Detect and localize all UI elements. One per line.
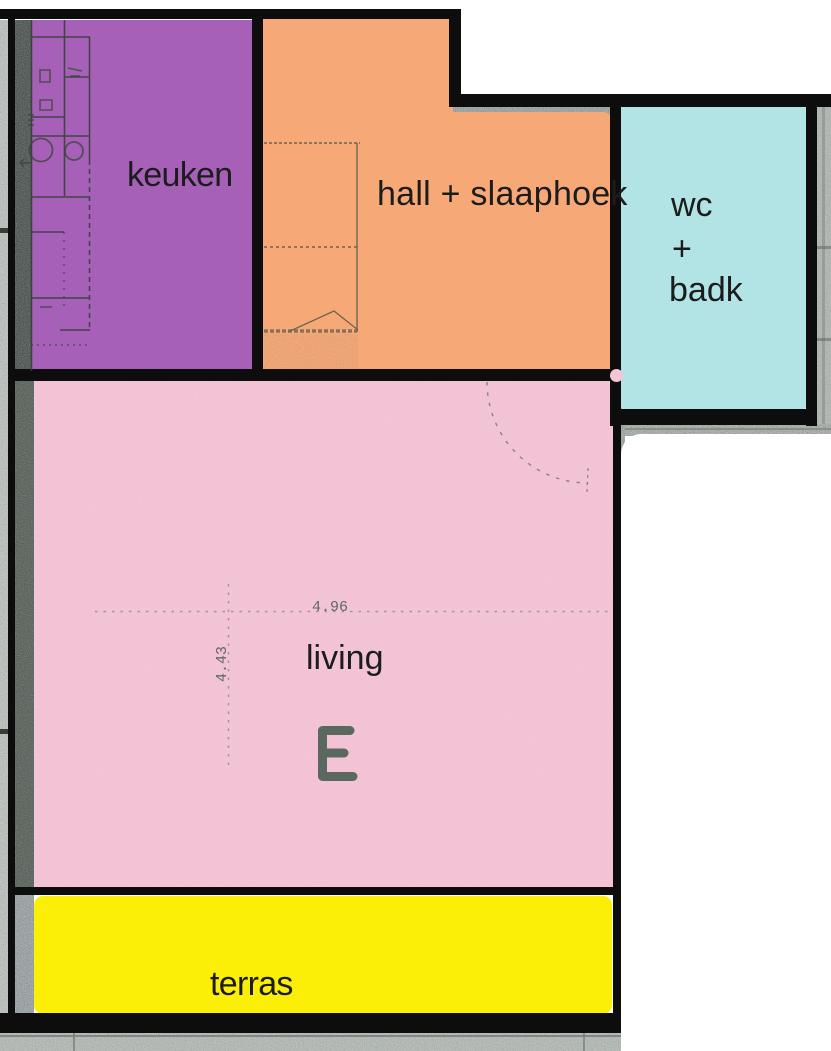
svg-text:4.96: 4.96 [312,599,348,616]
svg-text:4.43: 4.43 [214,646,231,682]
